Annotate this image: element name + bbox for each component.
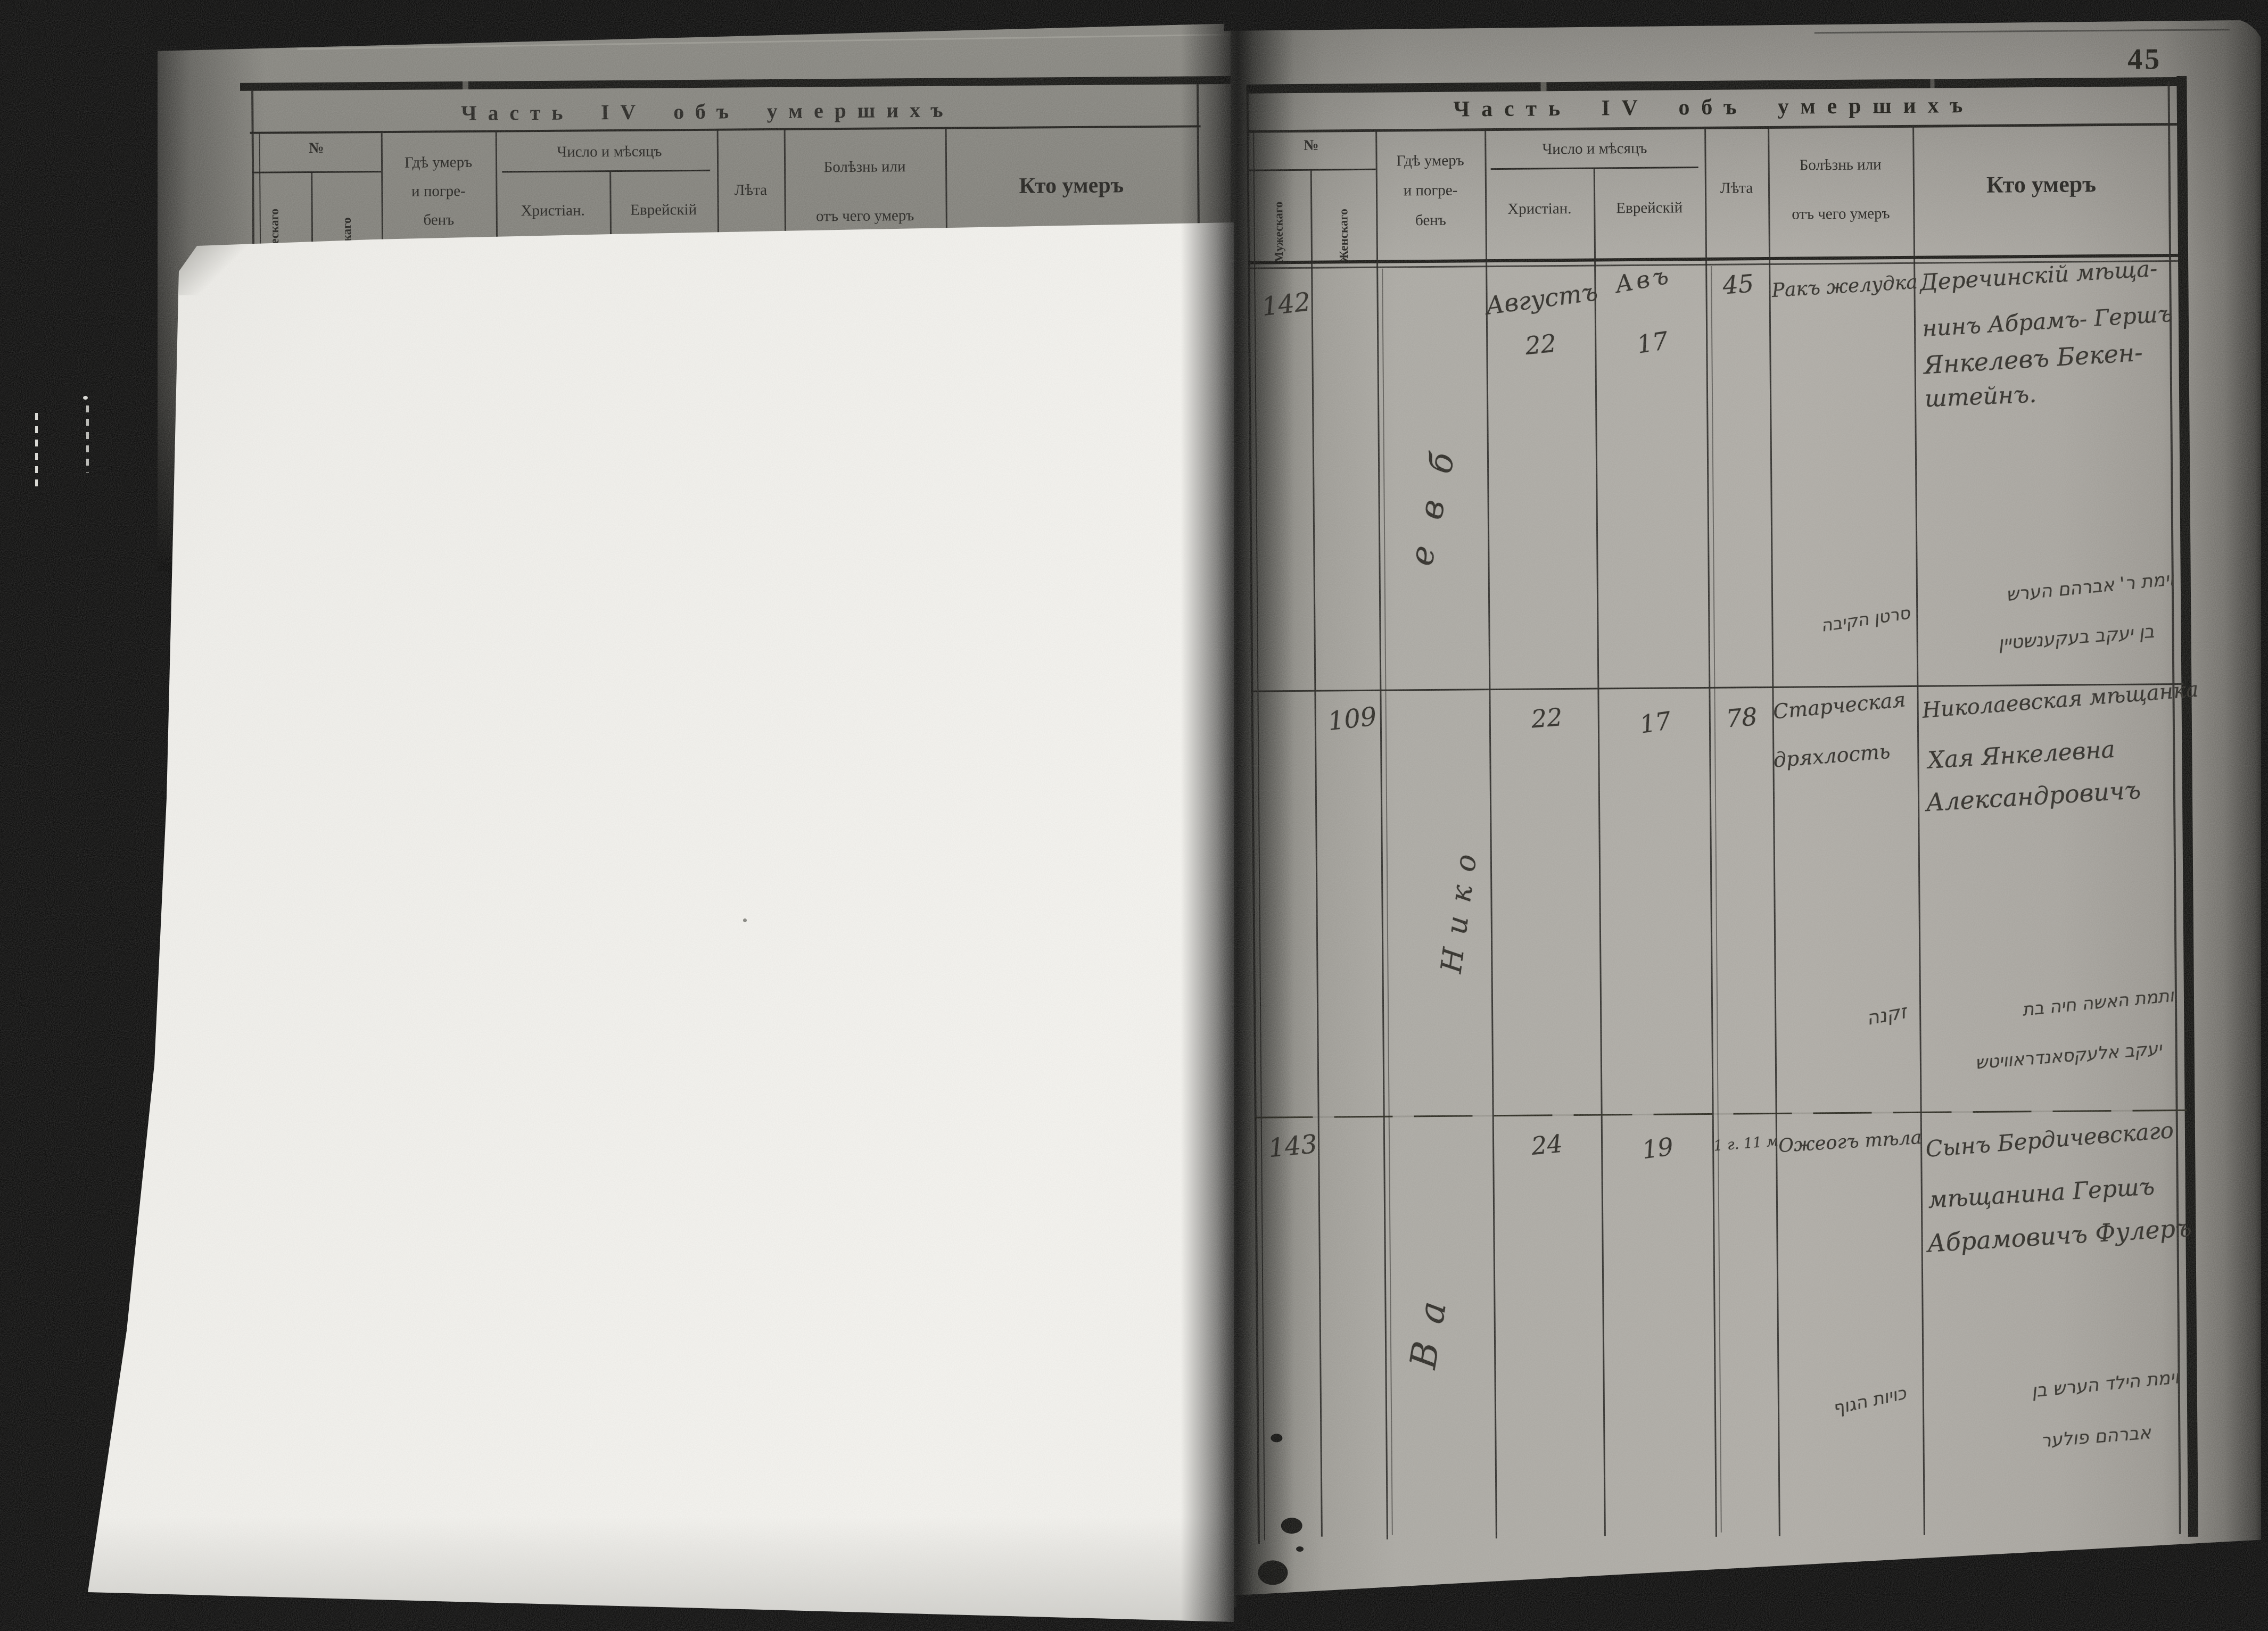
who-line-2: Хая Янкелевна [1927, 736, 2116, 774]
right-col-christian: Христіан. [1485, 200, 1594, 219]
right-table-top-border-notch2 [1930, 79, 1934, 88]
right-table-top-border [1246, 77, 2183, 94]
right-divider-male-female [1310, 169, 1323, 1537]
who-line-1: Сынъ Бердичевскаго [1925, 1117, 2175, 1162]
christian-month: Августъ [1484, 277, 1599, 320]
who-hebrew-line-1: וימת הילד הערש בן [1924, 1367, 2180, 1412]
who-line-2: нинъ Абрамъ- Гершъ [1921, 301, 2173, 342]
place-script: Ва [1402, 1279, 1458, 1371]
age-value: 1 г. 11 м. [1713, 1132, 1783, 1154]
who-hebrew-line-2: בן יעקב בעקענשטיין [1931, 621, 2155, 659]
right-col-who: Кто умеръ [1913, 170, 2170, 199]
ink-blot-speck [1296, 1546, 1304, 1552]
right-col-cause-1: Болѣзнь или [1768, 156, 1913, 175]
place-script: евб [1401, 422, 1467, 569]
cause-hebrew: כויות הגוף [1794, 1382, 1908, 1427]
right-col-female-vertical: Женскаго [1337, 209, 1351, 262]
christian-day: 22 [1524, 329, 1557, 360]
right-col-jewish: Еврейскій [1594, 199, 1705, 218]
right-divider-christian-jewish [1594, 169, 1606, 1536]
right-col-where-2: и погре- [1376, 181, 1485, 200]
who-line-3: Янкелевъ Бекен- [1923, 338, 2143, 380]
cause-text: Ракъ желудка [1771, 271, 1918, 302]
who-hebrew-line-2: אברהם פולער [1949, 1422, 2152, 1459]
right-page-title: Часть IV объ умершихъ [1261, 91, 2166, 123]
record-number-female: 109 [1326, 701, 1378, 736]
who-line-3: Абрамовичъ Фулеръ [1926, 1213, 2192, 1258]
right-black-edge [2261, 0, 2268, 1631]
right-divider-no-where-twin [1382, 269, 1393, 1535]
cause-line-1: Старческая [1772, 688, 1907, 724]
who-line-2: мѣщанина Гершъ [1927, 1173, 2156, 1214]
jewish-day: 17 [1635, 326, 1670, 359]
jewish-month-script: Авъ [1613, 262, 1674, 299]
who-line-3: Александровичъ [1925, 775, 2142, 817]
christian-day: 24 [1530, 1129, 1564, 1161]
who-hebrew-line-2: יעקב אלעקסאנדראוויטש [1933, 1038, 2163, 1076]
age-value: 78 [1725, 702, 1759, 733]
right-divider-age-cause [1768, 126, 1780, 1536]
cause-hebrew: סרטן הקיבה [1782, 602, 1911, 641]
place-script: Нико [1434, 839, 1485, 975]
scanned-register-spread: Часть IV объ умершихъ № Гдѣ умеръ и погр… [0, 0, 2268, 1631]
age-value: 45 [1721, 269, 1755, 300]
right-divider-where-christian [1484, 128, 1497, 1538]
right-col-where-1: Гдѣ умеръ [1375, 152, 1484, 170]
right-col-where-3: бенъ [1376, 211, 1485, 230]
right-table-top-border-notch [1540, 82, 1546, 91]
page-number: 45 [2127, 42, 2162, 77]
right-title-underline [1247, 123, 2179, 133]
right-divider-jewish-age-twin [1711, 266, 1722, 1533]
right-col-age: Лѣта [1705, 179, 1768, 197]
jewish-day: 17 [1638, 706, 1673, 739]
who-hebrew-line-1: וימת ר' אברהם הערש [1918, 568, 2175, 614]
right-col-dategroup: Число и мѣсяцъ [1484, 139, 1704, 159]
right-page-edge-band [2176, 76, 2198, 1537]
sheet-speck [743, 918, 747, 922]
cause-line-2: дряхлость [1772, 740, 1891, 772]
cause-text: Ожеогъ тѣла [1778, 1127, 1923, 1157]
cause-hebrew: זקנה [1805, 1001, 1908, 1041]
christian-day: 22 [1530, 702, 1564, 733]
binding-gutter-shadow [1181, 0, 1294, 1631]
right-page-top-edge [1815, 29, 2230, 34]
who-hebrew-line-1: ותמת האשה חיה בת [1924, 985, 2175, 1029]
jewish-day: 19 [1640, 1132, 1675, 1164]
row-separator-2 [1255, 1110, 2187, 1119]
who-line-4: штейнъ. [1924, 380, 2037, 412]
right-col-cause-2: отъ чего умеръ [1768, 205, 1913, 223]
